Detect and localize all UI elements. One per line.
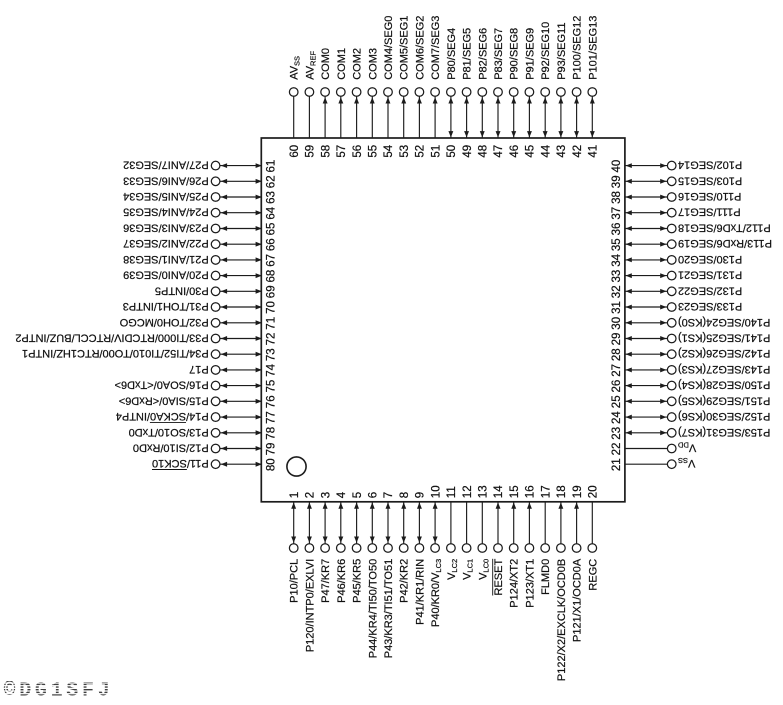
svg-text:P91/SEG9: P91/SEG9 — [524, 28, 536, 80]
svg-text:34: 34 — [611, 253, 623, 266]
svg-text:P41/KR1/RIN: P41/KR1/RIN — [414, 559, 426, 625]
svg-text:8: 8 — [399, 492, 411, 498]
svg-text:29: 29 — [611, 333, 623, 346]
svg-text:12: 12 — [462, 485, 474, 498]
svg-text:COM5/SEG1: COM5/SEG1 — [399, 16, 411, 80]
svg-text:P92/SEG10: P92/SEG10 — [540, 22, 552, 80]
svg-text:P102/SEG14: P102/SEG14 — [678, 159, 742, 171]
svg-text:P25/ANI5/SEG34: P25/ANI5/SEG34 — [123, 190, 209, 202]
svg-text:P17: P17 — [189, 363, 209, 375]
svg-text:5: 5 — [352, 492, 364, 498]
svg-text:49: 49 — [462, 145, 474, 158]
svg-text:11: 11 — [446, 486, 458, 498]
svg-text:P33/TI000/RTCDIV/RTCCL/BUZ/INT: P33/TI000/RTCDIV/RTCCL/BUZ/INTP2 — [15, 332, 208, 344]
svg-text:P113/RxD6/SEG19: P113/RxD6/SEG19 — [678, 237, 772, 249]
svg-text:39: 39 — [611, 175, 623, 188]
svg-text:COM2: COM2 — [352, 48, 364, 80]
svg-text:50: 50 — [446, 145, 458, 158]
svg-text:43: 43 — [556, 145, 568, 158]
svg-text:P133/SEG23: P133/SEG23 — [678, 300, 742, 312]
svg-text:32: 32 — [611, 285, 623, 298]
svg-text:P100/SEG12: P100/SEG12 — [572, 16, 584, 80]
svg-text:P151/SEG29(KS5): P151/SEG29(KS5) — [678, 394, 770, 406]
svg-text:67: 67 — [265, 254, 277, 267]
svg-text:P12/SI10/RxD0: P12/SI10/RxD0 — [133, 442, 209, 454]
svg-text:77: 77 — [265, 411, 277, 424]
svg-text:P120/INTP0/EXLVI: P120/INTP0/EXLVI — [304, 559, 316, 652]
svg-text:P153/SEG31(KS7): P153/SEG31(KS7) — [678, 426, 770, 438]
svg-text:80: 80 — [265, 458, 277, 471]
svg-text:21: 21 — [611, 458, 623, 471]
svg-text:P15/SIA0/<RxD6>: P15/SIA0/<RxD6> — [119, 394, 209, 406]
svg-text:38: 38 — [611, 191, 623, 204]
svg-text:14: 14 — [493, 485, 505, 498]
svg-text:33: 33 — [611, 270, 623, 283]
svg-text:79: 79 — [265, 443, 277, 456]
svg-text:60: 60 — [289, 145, 301, 158]
svg-text:68: 68 — [265, 270, 277, 283]
svg-text:P14/SCKA0/INTP4: P14/SCKA0/INTP4 — [116, 410, 209, 422]
svg-text:16: 16 — [525, 485, 537, 498]
svg-text:COM3: COM3 — [367, 48, 379, 80]
svg-text:1: 1 — [289, 492, 301, 498]
svg-text:P93/SEG11: P93/SEG11 — [556, 23, 568, 80]
svg-text:P90/SEG8: P90/SEG8 — [509, 28, 521, 80]
svg-text:P20/ANI0/SEG39: P20/ANI0/SEG39 — [123, 269, 209, 281]
svg-text:17: 17 — [540, 485, 552, 498]
svg-text:40: 40 — [611, 160, 623, 173]
svg-text:FLMD0: FLMD0 — [540, 559, 552, 595]
svg-text:P44/KR4/TI50/TO50: P44/KR4/TI50/TO50 — [367, 559, 379, 658]
svg-text:57: 57 — [336, 145, 348, 158]
svg-text:P80/SEG4: P80/SEG4 — [446, 28, 458, 80]
svg-text:P27/ANI7/SEG32: P27/ANI7/SEG32 — [123, 159, 209, 171]
svg-text:P132/SEG22: P132/SEG22 — [678, 284, 742, 296]
svg-text:COM6/SEG2: COM6/SEG2 — [414, 16, 426, 80]
svg-text:76: 76 — [265, 395, 277, 408]
svg-text:22: 22 — [611, 443, 623, 456]
svg-text:78: 78 — [265, 427, 277, 440]
svg-text:63: 63 — [265, 191, 277, 204]
svg-text:61: 61 — [265, 160, 277, 173]
svg-text:20: 20 — [588, 485, 600, 498]
svg-text:P42/KR2: P42/KR2 — [399, 559, 411, 603]
svg-text:P31/TOH1/INTP3: P31/TOH1/INTP3 — [123, 300, 209, 312]
svg-text:COM7/SEG3: COM7/SEG3 — [430, 16, 442, 80]
svg-text:P22/ANI2/SEG37: P22/ANI2/SEG37 — [123, 237, 209, 249]
svg-text:27: 27 — [611, 364, 623, 377]
svg-text:P101/SEG13: P101/SEG13 — [587, 16, 599, 80]
svg-text:65: 65 — [265, 223, 277, 236]
svg-text:70: 70 — [265, 301, 277, 314]
svg-text:P46/KR6: P46/KR6 — [336, 559, 348, 603]
svg-text:42: 42 — [572, 145, 584, 158]
svg-text:P81/SEG5: P81/SEG5 — [462, 28, 474, 80]
svg-text:59: 59 — [305, 145, 317, 158]
svg-text:66: 66 — [265, 238, 277, 251]
svg-text:4: 4 — [336, 491, 348, 498]
svg-text:P131/SEG21: P131/SEG21 — [678, 269, 742, 281]
svg-text:P32/TOH0/MCGO: P32/TOH0/MCGO — [119, 316, 208, 328]
svg-text:P111/SEG17: P111/SEG17 — [678, 206, 741, 218]
svg-text:71: 71 — [265, 317, 277, 330]
svg-text:P150/SEG28(KS4): P150/SEG28(KS4) — [678, 379, 770, 391]
svg-text:15: 15 — [509, 485, 521, 498]
svg-text:13: 13 — [478, 485, 490, 498]
svg-text:73: 73 — [265, 348, 277, 361]
svg-text:P152/SEG30(KS6): P152/SEG30(KS6) — [678, 410, 770, 422]
svg-text:P140/SEG24(KS0): P140/SEG24(KS0) — [678, 316, 770, 328]
svg-text:52: 52 — [415, 145, 427, 158]
svg-text:45: 45 — [525, 145, 537, 158]
svg-text:P10/PCL: P10/PCL — [289, 559, 301, 603]
svg-text:53: 53 — [399, 145, 411, 158]
svg-text:P82/SEG6: P82/SEG6 — [477, 28, 489, 80]
svg-text:37: 37 — [611, 207, 623, 220]
svg-text:REGC: REGC — [587, 559, 599, 591]
svg-text:P141/SEG25(KS1): P141/SEG25(KS1) — [678, 332, 770, 344]
svg-text:2: 2 — [305, 492, 317, 498]
svg-text:P47/KR7: P47/KR7 — [320, 559, 332, 603]
svg-text:26: 26 — [611, 380, 623, 393]
svg-text:19: 19 — [572, 485, 584, 498]
svg-text:7: 7 — [383, 492, 395, 498]
svg-text:P143/SEG27(KS3): P143/SEG27(KS3) — [678, 363, 770, 375]
svg-text:35: 35 — [611, 238, 623, 251]
svg-text:74: 74 — [265, 363, 277, 376]
svg-text:P103/SEG15: P103/SEG15 — [678, 174, 742, 186]
svg-text:P123/XT1: P123/XT1 — [524, 559, 536, 608]
svg-text:10: 10 — [430, 485, 442, 498]
svg-text:P110/SEG16: P110/SEG16 — [678, 190, 741, 202]
svg-text:54: 54 — [383, 144, 395, 157]
svg-text:COM4/SEG0: COM4/SEG0 — [383, 16, 395, 80]
svg-text:31: 31 — [611, 301, 623, 314]
svg-text:P130/SEG20: P130/SEG20 — [678, 253, 742, 265]
svg-text:58: 58 — [320, 145, 332, 158]
svg-text:56: 56 — [352, 145, 364, 158]
svg-text:23: 23 — [611, 427, 623, 440]
svg-text:51: 51 — [430, 145, 442, 158]
svg-text:46: 46 — [509, 145, 521, 158]
svg-text:P34/TI52/TI010/TO00/RTC1HZ/INT: P34/TI52/TI010/TO00/RTC1HZ/INTP1 — [22, 347, 209, 359]
svg-text:36: 36 — [611, 223, 623, 236]
svg-text:30: 30 — [611, 317, 623, 330]
svg-text:62: 62 — [265, 175, 277, 188]
svg-text:72: 72 — [265, 333, 277, 346]
svg-text:69: 69 — [265, 285, 277, 298]
svg-text:COM0: COM0 — [320, 48, 332, 80]
svg-text:P122/X2/EXCLK/OCD0B: P122/X2/EXCLK/OCD0B — [556, 559, 568, 681]
svg-text:28: 28 — [611, 348, 623, 361]
svg-text:25: 25 — [611, 395, 623, 408]
svg-text:6: 6 — [368, 492, 380, 498]
svg-text:RESET: RESET — [493, 559, 505, 596]
svg-text:P83/SEG7: P83/SEG7 — [493, 28, 505, 80]
svg-text:P26/ANI6/SEG33: P26/ANI6/SEG33 — [123, 174, 209, 186]
svg-text:24: 24 — [611, 411, 623, 424]
svg-text:P21/ANI1/SEG38: P21/ANI1/SEG38 — [123, 253, 209, 265]
svg-text:P24/ANI4/SEG35: P24/ANI4/SEG35 — [123, 206, 209, 218]
svg-text:47: 47 — [493, 145, 505, 158]
svg-text:55: 55 — [368, 145, 380, 158]
svg-text:P112/TxD6/SEG18: P112/TxD6/SEG18 — [678, 222, 771, 234]
svg-text:©DG1SFJ: ©DG1SFJ — [4, 680, 114, 701]
svg-text:P11/SCK10: P11/SCK10 — [152, 457, 209, 469]
svg-text:P23/ANI3/SEG36: P23/ANI3/SEG36 — [123, 222, 209, 234]
svg-text:9: 9 — [415, 492, 427, 498]
svg-text:64: 64 — [265, 206, 277, 219]
svg-text:P13/SO10/TxD0: P13/SO10/TxD0 — [129, 426, 209, 438]
svg-text:P124/XT2: P124/XT2 — [509, 559, 521, 608]
svg-text:P30/INTP5: P30/INTP5 — [155, 284, 209, 296]
svg-text:18: 18 — [556, 485, 568, 498]
svg-text:P45/KR5: P45/KR5 — [352, 559, 364, 603]
svg-text:75: 75 — [265, 380, 277, 393]
svg-text:44: 44 — [540, 144, 552, 157]
svg-text:P121/X1/OCD0A: P121/X1/OCD0A — [572, 558, 584, 642]
svg-text:P142/SEG26(KS2): P142/SEG26(KS2) — [678, 347, 770, 359]
svg-text:48: 48 — [478, 145, 490, 158]
svg-text:41: 41 — [588, 145, 600, 158]
svg-text:COM1: COM1 — [336, 48, 348, 80]
svg-text:P43/KR3/TI51/TO51: P43/KR3/TI51/TO51 — [383, 559, 395, 658]
svg-text:P16/SOA0/<TxD6>: P16/SOA0/<TxD6> — [115, 379, 209, 391]
svg-text:3: 3 — [320, 492, 332, 498]
